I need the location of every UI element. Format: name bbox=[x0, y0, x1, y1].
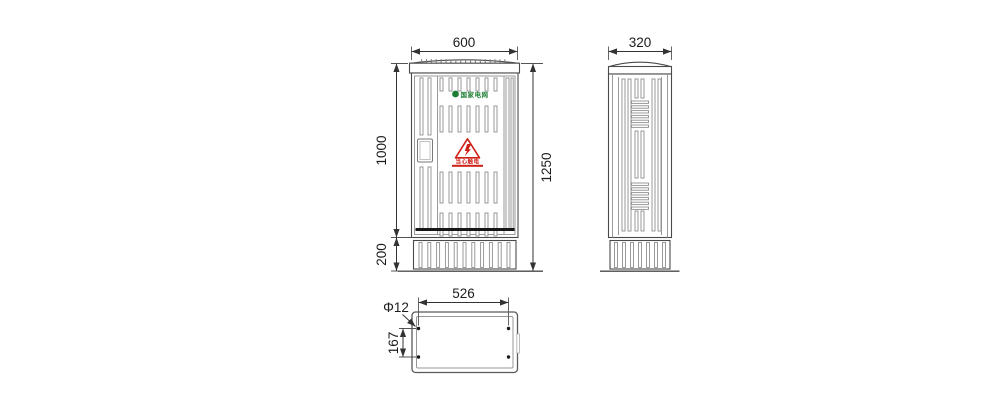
technical-drawing-canvas: 国家电网 当心触电 bbox=[0, 0, 1000, 400]
side-roof-cap bbox=[609, 62, 672, 74]
bottom-outer-outline bbox=[412, 312, 518, 373]
bottom-view bbox=[412, 312, 519, 373]
mounting-hole bbox=[417, 355, 420, 358]
door-lock bbox=[418, 139, 433, 162]
warning-label: 当心触电 bbox=[455, 158, 479, 166]
bottom-side-tab bbox=[517, 334, 520, 353]
side-body-outline bbox=[609, 74, 672, 238]
mounting-hole bbox=[507, 327, 510, 330]
bottom-hole-offset-label: 167 bbox=[386, 332, 401, 355]
front-base-height-label: 200 bbox=[374, 243, 389, 266]
front-trim-band bbox=[416, 228, 515, 231]
side-base-slats bbox=[615, 243, 666, 268]
warning-underline bbox=[452, 165, 483, 167]
hole-diameter-label: Φ12 bbox=[383, 300, 409, 315]
front-total-height-label: 1250 bbox=[539, 152, 554, 182]
bottom-hole-span-label: 526 bbox=[452, 286, 475, 301]
front-view: 国家电网 当心触电 bbox=[398, 60, 543, 271]
brand-logo-label: 国家电网 bbox=[461, 90, 489, 99]
cabinet-dimension-drawing: 国家电网 当心触电 bbox=[0, 0, 1000, 400]
side-depth-label: 320 bbox=[629, 35, 652, 50]
front-roof-cap bbox=[410, 60, 520, 73]
brand-logo-icon bbox=[452, 91, 459, 98]
mounting-hole bbox=[417, 327, 420, 330]
side-view bbox=[600, 62, 680, 271]
side-dimensions: 320 bbox=[609, 35, 672, 60]
front-body-height-label: 1000 bbox=[374, 135, 389, 165]
front-width-label: 600 bbox=[453, 35, 476, 50]
mounting-hole bbox=[507, 355, 510, 358]
